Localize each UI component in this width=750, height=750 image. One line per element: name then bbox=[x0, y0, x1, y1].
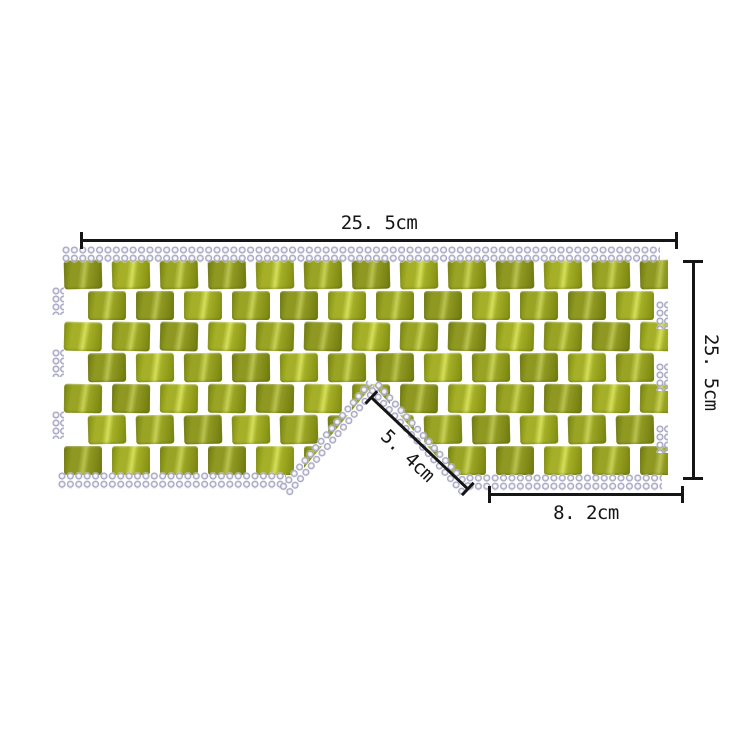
bottom-width-tick-right bbox=[681, 486, 684, 503]
jade-tile bbox=[640, 260, 679, 290]
jade-tile bbox=[64, 260, 103, 290]
dimension-bottom-width: 8. 2cm bbox=[488, 486, 684, 530]
jade-tile bbox=[400, 260, 439, 290]
jade-tile bbox=[280, 291, 318, 320]
bead-cluster-right-3 bbox=[656, 425, 668, 453]
jade-tile bbox=[64, 384, 102, 413]
jade-tile bbox=[328, 353, 366, 382]
jade-tile bbox=[616, 291, 654, 320]
jade-tile bbox=[88, 291, 126, 320]
jade-tile bbox=[112, 384, 150, 413]
jade-tile bbox=[616, 415, 655, 445]
top-width-line bbox=[80, 239, 678, 242]
jade-tile bbox=[160, 446, 198, 475]
top-width-tick-left bbox=[80, 232, 83, 249]
bead-cluster-left-2 bbox=[52, 349, 64, 377]
jade-tile bbox=[544, 446, 582, 475]
bead-strand-bottom-left bbox=[58, 472, 286, 489]
right-height-label: 25. 5cm bbox=[700, 312, 722, 432]
jade-tile bbox=[256, 260, 295, 290]
jade-tile bbox=[232, 415, 271, 445]
jade-tile bbox=[472, 415, 511, 445]
jade-tile bbox=[376, 353, 414, 382]
jade-tile bbox=[160, 384, 198, 413]
jade-tile bbox=[88, 415, 127, 445]
jade-tile bbox=[280, 353, 318, 382]
bottom-width-line bbox=[488, 493, 684, 496]
jade-tile bbox=[616, 353, 654, 382]
jade-tile bbox=[520, 353, 558, 382]
jade-tile bbox=[496, 446, 534, 475]
jade-tile bbox=[136, 353, 174, 382]
jade-tile bbox=[184, 415, 223, 445]
jade-tile bbox=[448, 322, 487, 352]
bottom-width-label: 8. 2cm bbox=[488, 502, 684, 524]
product-photo: 25. 5cm 25. 5cm 5. 4cm 8. 2cm bbox=[0, 0, 750, 750]
jade-tile bbox=[64, 446, 102, 475]
jade-tile bbox=[136, 415, 175, 445]
jade-tile bbox=[544, 322, 583, 352]
jade-tile bbox=[160, 322, 199, 352]
jade-tile bbox=[424, 353, 462, 382]
bead-cluster-right-1 bbox=[656, 301, 668, 329]
jade-tile bbox=[208, 260, 247, 290]
jade-tile bbox=[376, 291, 414, 320]
jade-tile bbox=[544, 384, 582, 413]
jade-tile bbox=[592, 384, 630, 413]
jade-tile bbox=[208, 322, 247, 352]
jade-tile bbox=[184, 353, 222, 382]
jade-tile bbox=[520, 415, 559, 445]
jade-tile bbox=[304, 322, 343, 352]
jade-tile bbox=[184, 291, 222, 320]
jade-tile-grid bbox=[52, 245, 668, 492]
jade-tile bbox=[304, 384, 342, 413]
dimension-top-width: 25. 5cm bbox=[80, 212, 678, 252]
jade-tile bbox=[256, 322, 295, 352]
jade-tile bbox=[208, 446, 246, 475]
jade-tile bbox=[568, 291, 606, 320]
jade-tile bbox=[496, 322, 535, 352]
eye-mask-product bbox=[52, 245, 668, 492]
jade-tile bbox=[592, 322, 631, 352]
jade-tile bbox=[568, 415, 607, 445]
jade-tile bbox=[400, 322, 439, 352]
jade-tile bbox=[592, 260, 631, 290]
jade-tile bbox=[232, 291, 270, 320]
top-width-tick-right bbox=[675, 232, 678, 249]
bead-cluster-left-1 bbox=[52, 287, 64, 315]
jade-tile bbox=[568, 353, 606, 382]
bead-cluster-right-2 bbox=[656, 363, 668, 391]
jade-tile bbox=[64, 322, 103, 352]
jade-tile bbox=[112, 260, 151, 290]
dimension-right-height: 25. 5cm bbox=[683, 260, 733, 482]
jade-tile bbox=[472, 291, 510, 320]
jade-tile bbox=[112, 322, 151, 352]
right-height-cap-bottom bbox=[683, 477, 703, 480]
jade-tile bbox=[256, 384, 294, 413]
bead-cluster-left-3 bbox=[52, 411, 64, 439]
jade-tile bbox=[304, 260, 343, 290]
top-width-label: 25. 5cm bbox=[80, 212, 678, 234]
jade-tile bbox=[112, 446, 150, 475]
jade-tile bbox=[88, 353, 126, 382]
jade-tile bbox=[496, 260, 535, 290]
jade-tile bbox=[592, 446, 630, 475]
jade-tile bbox=[424, 291, 462, 320]
jade-tile bbox=[352, 322, 391, 352]
jade-tile bbox=[448, 384, 486, 413]
jade-tile bbox=[232, 353, 270, 382]
jade-tile bbox=[208, 384, 246, 413]
jade-tile bbox=[496, 384, 534, 413]
jade-tile bbox=[352, 260, 391, 290]
jade-tile bbox=[544, 260, 583, 290]
jade-tile bbox=[136, 291, 174, 320]
jade-tile bbox=[280, 415, 319, 445]
right-height-line bbox=[692, 260, 695, 480]
jade-tile bbox=[328, 291, 366, 320]
jade-tile bbox=[520, 291, 558, 320]
jade-tile bbox=[472, 353, 510, 382]
jade-tile bbox=[256, 446, 294, 475]
jade-tile bbox=[448, 260, 487, 290]
jade-tile bbox=[160, 260, 199, 290]
